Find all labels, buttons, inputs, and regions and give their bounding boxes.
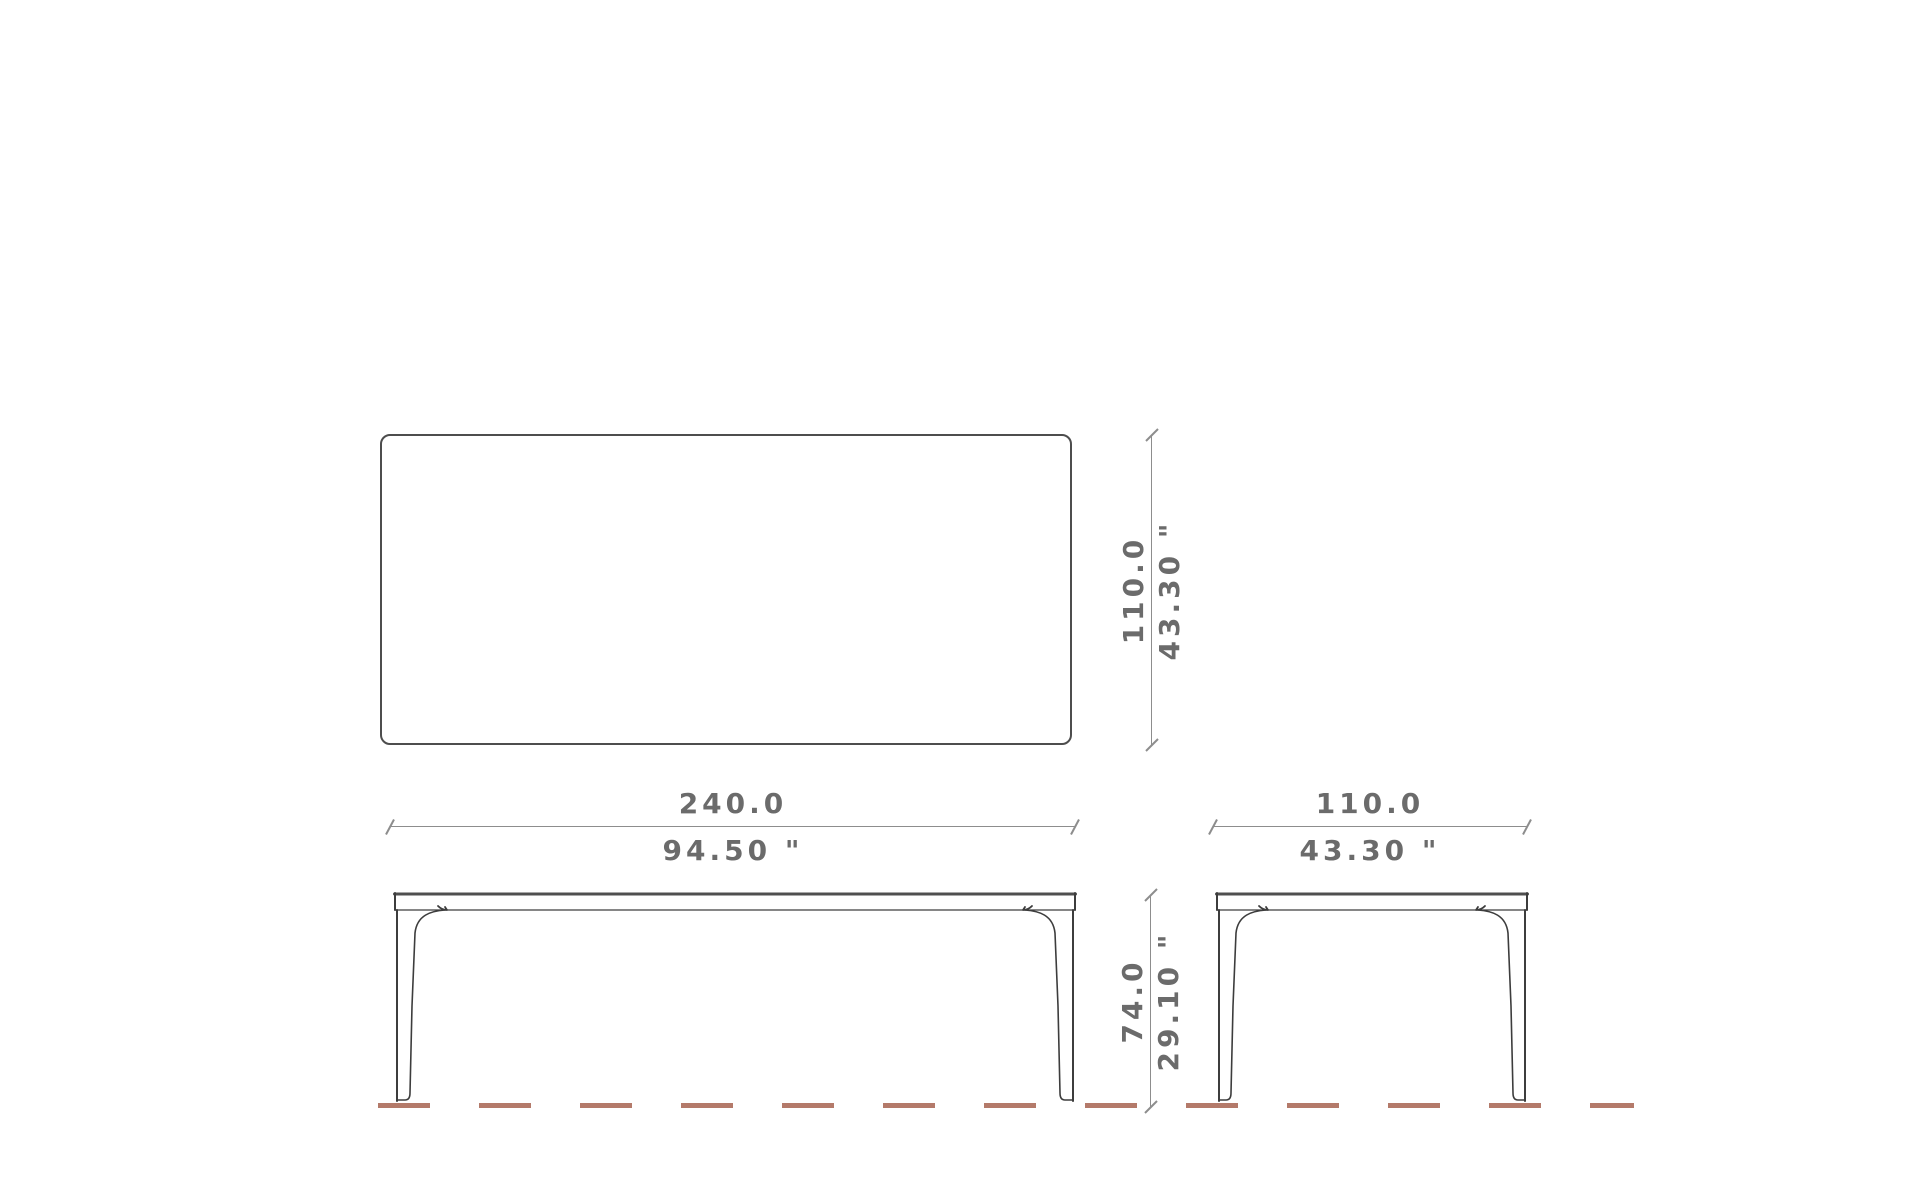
top-view-outline (380, 434, 1072, 745)
technical-drawing-canvas: 110.0 43.30 " 240.0 94.50 " 110.0 43.30 … (0, 0, 1920, 1200)
side-elevation-drawing (1215, 891, 1529, 1107)
height-metric-value: 74.0 (1115, 931, 1151, 1072)
top-depth-imperial-value: 43.30 " (1152, 520, 1188, 661)
side-tabletop-end-caps (1217, 893, 1527, 910)
side-left-leg-inner (1219, 910, 1266, 1100)
front-left-leg-inner (397, 910, 445, 1100)
width-metric-value: 240.0 (663, 780, 804, 827)
height-imperial-value: 29.10 " (1151, 931, 1187, 1072)
side-depth-metric-value: 110.0 (1300, 780, 1441, 827)
ground-line (378, 1103, 1634, 1108)
side-right-leg-inner (1478, 910, 1525, 1100)
front-elevation-drawing (393, 891, 1077, 1107)
side-depth-dimension-label: 110.0 43.30 " (1300, 780, 1441, 874)
width-dimension-label: 240.0 94.50 " (663, 780, 804, 874)
side-depth-imperial-value: 43.30 " (1300, 827, 1441, 874)
front-right-leg-inner (1025, 910, 1073, 1100)
front-tabletop-end-caps (395, 893, 1075, 910)
top-depth-dimension-label: 110.0 43.30 " (1116, 520, 1188, 661)
height-dimension-label: 74.0 29.10 " (1115, 931, 1187, 1072)
width-imperial-value: 94.50 " (663, 827, 804, 874)
top-depth-metric-value: 110.0 (1116, 520, 1152, 661)
